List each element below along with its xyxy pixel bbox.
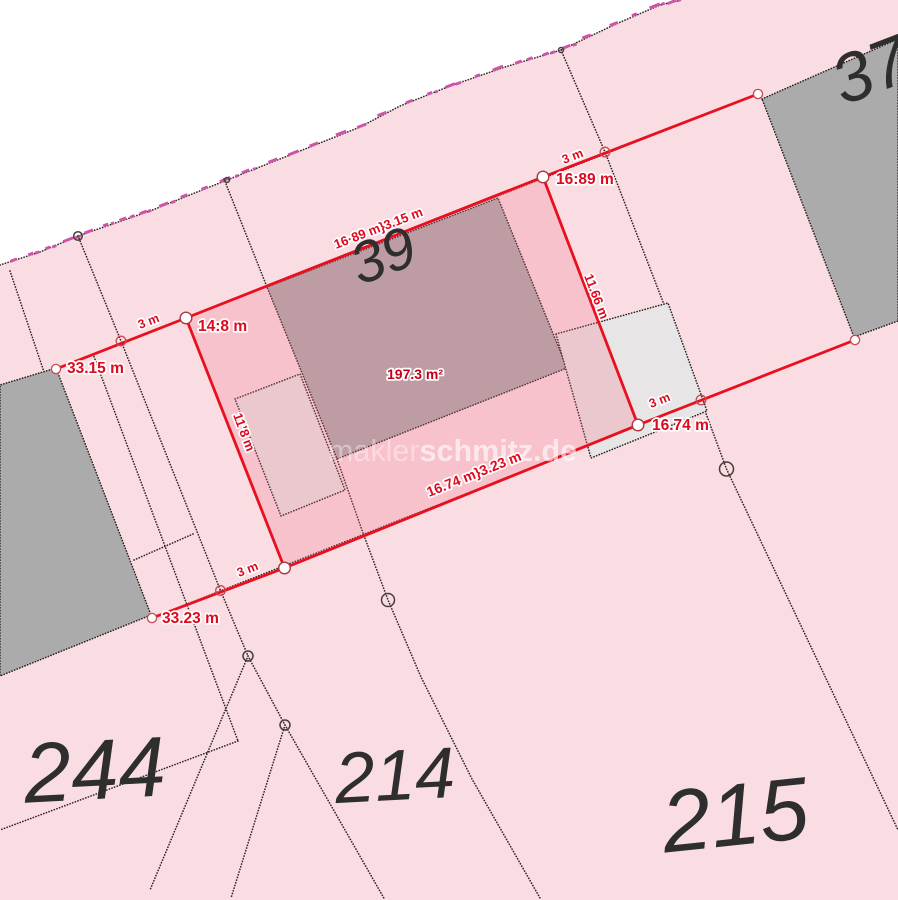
svg-text:maklerschmitz.de: maklerschmitz.de <box>328 434 577 468</box>
svg-text:33.23 m: 33.23 m <box>162 610 219 627</box>
svg-text:16:89 m: 16:89 m <box>556 171 614 188</box>
svg-text:214: 214 <box>332 733 457 819</box>
svg-text:197.3 m²: 197.3 m² <box>387 366 443 382</box>
svg-text:215: 215 <box>656 758 814 872</box>
svg-text:33.15 m: 33.15 m <box>67 360 124 377</box>
svg-text:16.74 m: 16.74 m <box>652 417 709 434</box>
svg-text:14:8 m: 14:8 m <box>198 318 247 335</box>
svg-text:244: 244 <box>20 719 168 821</box>
